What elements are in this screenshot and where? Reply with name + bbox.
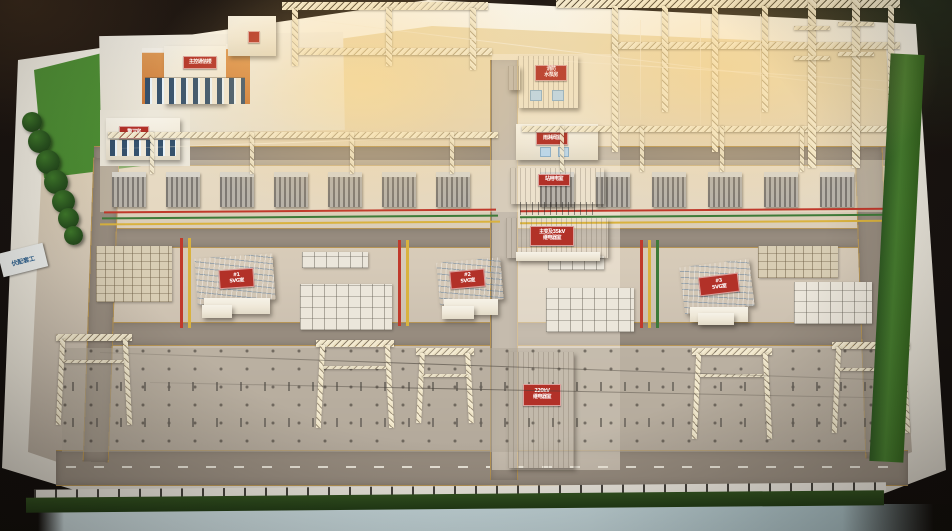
gantry-column [662,6,668,112]
sign-main-control-building: 主控通信楼 [183,56,217,69]
road-bottom-dashes [66,466,898,468]
container-bank [300,284,392,330]
tower-crossarm [838,22,874,26]
bay-column [350,132,354,174]
bay-column [720,126,724,172]
window [530,90,542,101]
transformer [820,172,854,207]
container-bank [546,288,634,332]
sign-svg-room-2: #2 SVG室 [449,269,485,290]
gantry-column [386,8,392,66]
sign-svg-room-1: #1 SVG室 [218,268,254,289]
equipment-rack [96,246,172,302]
relay-room-step [516,252,600,261]
portal-leg [763,353,773,439]
auxiliary-building-sign [248,31,260,43]
transformer [382,172,416,207]
svg-building-3-step [698,313,734,325]
portal-brace [422,374,468,377]
lattice-portal [692,348,772,446]
transformer [220,172,254,207]
gantry-beam [282,2,488,10]
tower-crossarm [794,26,830,30]
transformer [166,172,200,207]
window [552,90,564,101]
fire-pump-house [518,56,578,108]
bay-column [150,132,154,174]
sign-text: #3 SVG室 [711,278,727,291]
sign-text: 站用电室 [545,177,563,183]
transformer [112,172,146,207]
tower-crossarm [838,52,874,56]
transformer [652,172,686,207]
portal-leg [832,347,842,433]
sign-text: 消防 水泵房 [544,67,558,79]
gantry-column [292,8,298,66]
drop-wire [640,20,641,120]
gantry-beam [556,0,900,8]
placard-text: 伏配套工 [10,253,35,268]
vertical-bus-yellow [188,238,191,328]
tree [64,226,83,245]
portal-leg [56,339,66,425]
window [540,147,551,157]
station-power-room-lower [520,202,596,215]
svg-building-2-step [442,306,474,319]
drop-wire [700,16,701,126]
lattice-portal [56,334,132,432]
equipment-rack [758,246,838,278]
sign-text: #2 SVG室 [460,273,476,286]
portal-leg [692,353,702,439]
sign-text: 雨淋阀室 [543,136,561,142]
container-bank [302,252,368,268]
sign-text: #1 SVG室 [229,272,244,284]
portal-brace [324,366,386,369]
transformer [274,172,308,207]
vertical-bus-green [656,240,659,328]
vertical-bus-yellow [406,240,409,326]
gantry-beam [522,126,892,132]
tree [22,112,42,132]
sign-text: 主变及35kV 继电器室 [539,230,565,242]
sign-text: 主控通信楼 [189,60,212,66]
vertical-bus-red [398,240,401,326]
transformer [764,172,798,207]
sign-mv-relay-room: 主变及35kV 继电器室 [530,226,574,246]
gantry-column [712,6,718,152]
road-bottom [56,450,908,486]
tower-crossarm [794,56,830,60]
model-photo: 伏配套工 [0,0,952,531]
relay-room-220kv [508,352,574,468]
bay-column [450,132,454,174]
gantry-column [762,6,768,112]
main-building-windows [145,78,245,104]
transformer [328,172,362,207]
portal-beam [56,334,132,341]
container-bank [794,282,872,324]
portal-brace [64,360,125,363]
bay-column [640,126,644,172]
transformer [708,172,742,207]
sign-220kv-relay-room: 220kV 继电器室 [523,384,561,406]
sign-station-power-room: 站用电室 [538,174,570,186]
transformer [436,172,470,207]
gantry-beam [298,48,492,55]
sign-fire-pump-house: 消防 水泵房 [535,65,567,81]
svg-building-1-step [202,305,232,318]
bay-column [560,126,564,172]
vertical-bus-yellow [648,240,651,328]
gantry-column [612,6,618,152]
vertical-bus-red [180,238,183,328]
drop-wire [760,14,761,124]
bay-column [800,126,804,172]
switchyard-field [62,348,898,452]
bay-column [250,132,254,174]
vertical-bus-red [640,240,643,328]
portal-beam [316,340,394,347]
portal-beam [692,348,772,355]
